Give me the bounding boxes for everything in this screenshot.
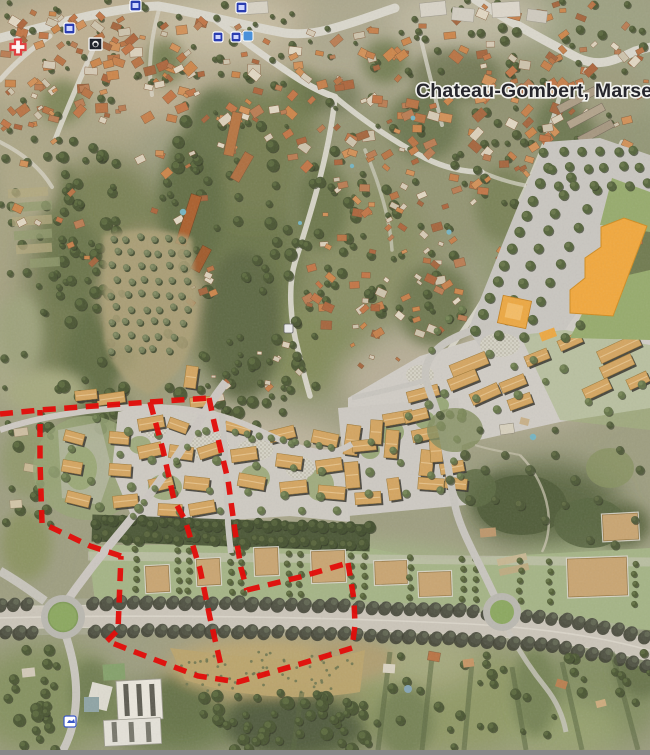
svg-text:Chateau-Gombert, Marse: Chateau-Gombert, Marse	[416, 80, 650, 102]
